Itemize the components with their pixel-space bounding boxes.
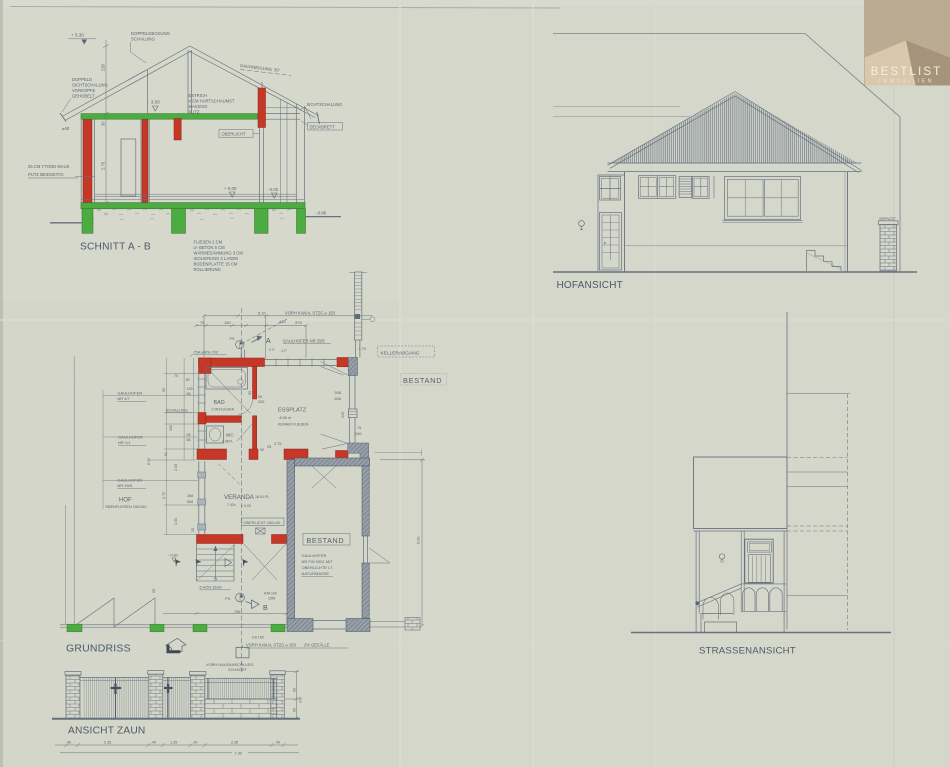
svg-text:HOF: HOF: [119, 498, 132, 504]
svg-text:40: 40: [276, 741, 280, 745]
svg-text:765: 765: [234, 610, 240, 614]
svg-text:SICHTSCHALUNG: SICHTSCHALUNG: [72, 83, 108, 88]
svg-text:68: 68: [187, 392, 191, 396]
svg-text:6.00: 6.00: [416, 536, 421, 544]
svg-text:1.35: 1.35: [170, 741, 177, 745]
svg-text:90: 90: [248, 391, 252, 395]
svg-text:VERPUTZT: VERPUTZT: [879, 217, 896, 221]
svg-text:EBENFLIESEN 150/150: EBENFLIESEN 150/150: [106, 505, 147, 509]
svg-text:GRUNDRISS: GRUNDRISS: [66, 643, 131, 655]
svg-text:90: 90: [260, 448, 264, 452]
svg-text:VORH KANAL STZG ⌀ 150 2% G: VORH KANAL STZG ⌀ 150 2% GEFÄLLE: [246, 643, 330, 648]
svg-text:150: 150: [169, 425, 173, 431]
svg-text:HOFANSICHT: HOFANSICHT: [557, 280, 623, 291]
svg-text:BESTAND: BESTAND: [307, 536, 345, 545]
svg-text:1 F: 1 F: [281, 348, 287, 353]
svg-text:DOPPELDECKUNG: DOPPELDECKUNG: [131, 31, 171, 36]
svg-text:1.70: 1.70: [359, 347, 366, 351]
svg-text:BESTLIST: BESTLIST: [871, 64, 943, 78]
svg-text:2.35: 2.35: [104, 741, 111, 745]
svg-text:GAULHOFER NR 25/5: GAULHOFER NR 25/5: [283, 338, 325, 343]
svg-text:IMMOBILIEN: IMMOBILIEN: [879, 78, 934, 84]
svg-text:18.91 PL: 18.91 PL: [255, 495, 269, 499]
svg-text:SCHALUNG: SCHALUNG: [131, 37, 156, 42]
svg-text:508: 508: [187, 500, 193, 504]
svg-text:+ 5.30: + 5.30: [71, 33, 84, 38]
svg-text:7.30: 7.30: [235, 751, 243, 756]
svg-text:+ 0.00: + 0.00: [224, 186, 237, 191]
svg-text:VORH KANAL STZG ⌀ 150: VORH KANAL STZG ⌀ 150: [285, 310, 336, 315]
svg-text:2.75: 2.75: [274, 442, 281, 446]
svg-text:NATURMASSE: NATURMASSE: [302, 571, 330, 576]
svg-text:ROLLIERUNG: ROLLIERUNG: [194, 267, 221, 272]
svg-text:75: 75: [357, 426, 361, 430]
svg-text:6.30: 6.30: [147, 458, 151, 465]
svg-text:50: 50: [292, 708, 296, 712]
svg-text:OBERLICHT: OBERLICHT: [222, 132, 246, 137]
svg-text:GAULHOFER: GAULHOFER: [118, 435, 143, 440]
svg-text:30: 30: [101, 121, 106, 126]
svg-text:135: 135: [187, 387, 193, 391]
svg-text:PS: PS: [230, 337, 236, 341]
svg-text:B: B: [263, 605, 268, 612]
svg-text:PS: PS: [225, 596, 231, 601]
svg-text:GAULHOFER: GAULHOFER: [302, 553, 327, 558]
svg-text:7.42x: 7.42x: [227, 503, 236, 507]
svg-text:160: 160: [224, 320, 231, 325]
svg-text:A: A: [266, 338, 271, 345]
svg-text:5.10: 5.10: [258, 311, 267, 316]
svg-text:608: 608: [335, 397, 341, 401]
svg-text:90: 90: [162, 388, 166, 392]
svg-text:⌀40: ⌀40: [62, 126, 70, 131]
svg-text:1.60: 1.60: [174, 518, 178, 525]
svg-text:75: 75: [200, 320, 205, 325]
svg-text:BODENPLATTE 15 CM: BODENPLATTE 15 CM: [194, 262, 238, 267]
svg-text:61: 61: [164, 452, 168, 456]
svg-text:NR 1/1: NR 1/1: [118, 440, 131, 445]
svg-text:90: 90: [292, 688, 296, 692]
svg-text:230: 230: [101, 63, 106, 71]
svg-text:- 3.00: - 3.00: [148, 100, 160, 105]
svg-text:140: 140: [299, 697, 303, 703]
svg-text:25: 25: [267, 445, 271, 449]
svg-text:KERAM FLIESEN: KERAM FLIESEN: [278, 423, 309, 427]
svg-text:ESSPLATZ: ESSPLATZ: [278, 408, 307, 414]
svg-text:SICHTSCHALUNG: SICHTSCHALUNG: [307, 102, 343, 107]
svg-text:245: 245: [341, 412, 345, 418]
svg-text:ISOLIERUNG 2 LAGEN: ISOLIERUNG 2 LAGEN: [194, 256, 239, 261]
svg-text:ESTRICH: ESTRICH: [189, 93, 207, 98]
svg-text:5 HÖH 16/30: 5 HÖH 16/30: [200, 586, 222, 590]
svg-text:STRASSENANSICHT: STRASSENANSICHT: [699, 646, 796, 657]
svg-text:2.70: 2.70: [162, 492, 166, 499]
svg-text:NR 4/7: NR 4/7: [117, 396, 130, 401]
svg-text:4 CM HARTSCHAUMST: 4 CM HARTSCHAUMST: [189, 99, 235, 104]
svg-text:PUTZ BEIDSEITIG: PUTZ BEIDSEITIG: [28, 172, 64, 177]
svg-text:90: 90: [186, 378, 190, 382]
svg-text:- 0.02: - 0.02: [267, 187, 279, 192]
svg-text:OBERLICHT 180×40: OBERLICHT 180×40: [244, 520, 281, 525]
svg-text:1.98 FL: 1.98 FL: [222, 440, 233, 444]
svg-text:200: 200: [258, 400, 264, 404]
svg-text:DOPPELD: DOPPELD: [72, 77, 92, 82]
svg-text:2.35: 2.35: [231, 741, 238, 745]
svg-text:8.56 m: 8.56 m: [280, 416, 292, 420]
svg-text:2 F: 2 F: [269, 347, 275, 352]
svg-text:75A ⌀ATA 70Z: 75A ⌀ATA 70Z: [194, 350, 219, 355]
svg-text:508: 508: [335, 391, 341, 395]
svg-text:68: 68: [187, 438, 191, 442]
svg-text:PUTZ: PUTZ: [189, 110, 200, 115]
svg-text:NR 25/5: NR 25/5: [117, 483, 132, 488]
svg-text:ATA 100: ATA 100: [264, 592, 277, 596]
svg-text:GAULHOFER: GAULHOFER: [117, 391, 142, 396]
svg-text:70: 70: [174, 374, 178, 378]
svg-text:SCHACHT: SCHACHT: [228, 667, 247, 672]
svg-text:GAULHOFER: GAULHOFER: [117, 478, 142, 483]
svg-text:2.70: 2.70: [101, 161, 106, 170]
svg-text:DECKBRETT: DECKBRETT: [310, 124, 336, 129]
svg-text:BESTAND: BESTAND: [403, 376, 442, 385]
svg-text:25: 25: [191, 528, 195, 532]
svg-text:25 CM YTONG MAUK: 25 CM YTONG MAUK: [28, 164, 70, 169]
svg-text:- 0.80: - 0.80: [315, 211, 327, 216]
svg-text:375: 375: [295, 320, 302, 325]
svg-text:90: 90: [258, 395, 262, 399]
svg-text:VORKOPFE: VORKOPFE: [72, 88, 95, 93]
svg-text:OBERLICHTE LT: OBERLICHTE LT: [302, 565, 334, 570]
svg-text:40: 40: [152, 741, 156, 745]
svg-text:240: 240: [355, 432, 361, 436]
svg-text:WC: WC: [226, 433, 234, 438]
svg-text:- 0.80: - 0.80: [168, 554, 178, 558]
svg-text:WÄRMEDÄMMUNG 3 CM: WÄRMEDÄMMUNG 3 CM: [194, 251, 244, 256]
svg-text:40: 40: [67, 741, 71, 745]
svg-text:KELLERABGANG: KELLERABGANG: [381, 350, 420, 356]
svg-text:GEHOBELT: GEHOBELT: [72, 94, 95, 99]
svg-text:40: 40: [194, 741, 198, 745]
svg-text:U- BETON 5 CM: U- BETON 5 CM: [194, 245, 226, 250]
svg-text:2.08: 2.08: [174, 464, 178, 471]
svg-text:VERANDA: VERANDA: [224, 494, 255, 501]
svg-text:CA 150: CA 150: [252, 636, 264, 640]
svg-text:SCHALUNG: SCHALUNG: [166, 408, 188, 413]
svg-text:2.96 FLIESEN: 2.96 FLIESEN: [212, 408, 235, 412]
svg-text:BAD: BAD: [214, 400, 225, 406]
svg-text:268: 268: [187, 494, 193, 498]
svg-text:FLIESEN 2 CM: FLIESEN 2 CM: [194, 240, 223, 245]
svg-text:ANSICHT ZAUN: ANSICHT ZAUN: [68, 726, 146, 737]
svg-text:68: 68: [187, 433, 191, 437]
svg-text:NR FW 0001 MIT: NR FW 0001 MIT: [302, 559, 334, 564]
svg-text:SCHNITT A - B: SCHNITT A - B: [80, 242, 151, 253]
svg-text:MASSIVD: MASSIVD: [189, 104, 208, 109]
svg-text:15W: 15W: [268, 597, 276, 601]
svg-text:± 0.00: ± 0.00: [241, 504, 251, 508]
svg-text:08: 08: [152, 589, 156, 593]
